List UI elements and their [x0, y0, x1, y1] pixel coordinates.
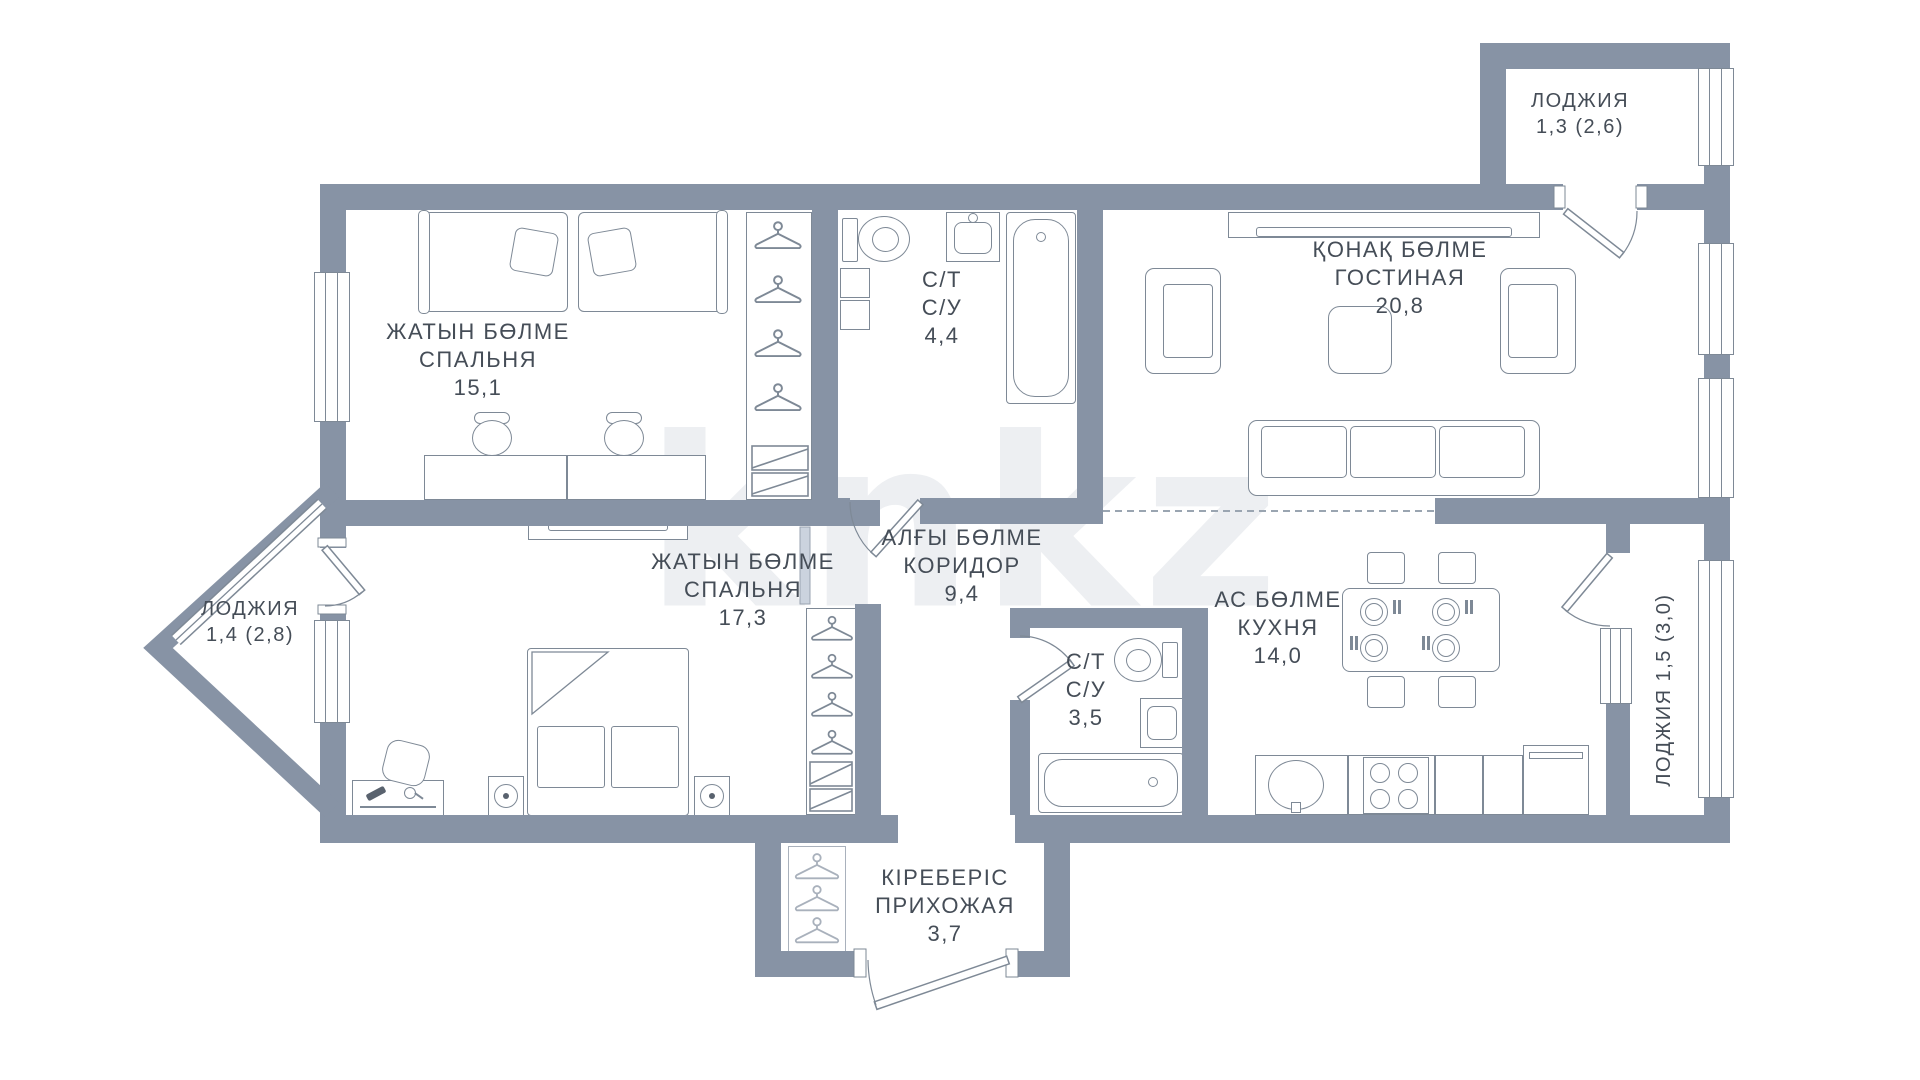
cutlery-icon [1393, 600, 1396, 614]
room-area: 15,1 [386, 374, 570, 402]
wall [812, 498, 850, 524]
pillow-icon [587, 227, 638, 278]
stool [472, 420, 512, 456]
lamp-dot [709, 793, 715, 799]
room-name-ru: СПАЛЬНЯ [651, 576, 835, 604]
wall-diagonal [158, 490, 332, 810]
wall [1704, 524, 1730, 560]
dresser [424, 455, 706, 500]
room-name-kk: ҚОНАҚ БӨЛМЕ [1313, 236, 1488, 264]
wall [1044, 843, 1070, 977]
desk [352, 780, 444, 816]
plate-inner [1437, 639, 1455, 657]
door-swing-arc [325, 592, 362, 606]
wall [1704, 43, 1730, 70]
bed-cushion [611, 726, 679, 788]
room-name-kk: С/Т [922, 266, 962, 294]
sofa-cushion [1439, 426, 1525, 478]
room-label-loggia-top: ЛОДЖИЯ 1,3 (2,6) [1531, 88, 1629, 140]
pillow-icon [509, 227, 560, 278]
wall [855, 604, 881, 815]
plate-inner [1365, 639, 1383, 657]
sink-basin [1147, 706, 1177, 740]
room-label-loggia-left: ЛОДЖИЯ 1,4 (2,8) [201, 596, 299, 648]
wall [1010, 608, 1208, 628]
plate-inner [1365, 603, 1383, 621]
window [1600, 628, 1632, 704]
room-label-bedroom2: ЖАТЫН БӨЛМЕ СПАЛЬНЯ 17,3 [651, 548, 835, 632]
room-name: ЛОДЖИЯ 1,5 (3,0) [1651, 593, 1677, 786]
room-name-ru: КУХНЯ [1214, 614, 1341, 642]
room-name: ЛОДЖИЯ [201, 596, 299, 622]
room-label-bath2: С/Т С/У 3,5 [1066, 648, 1106, 732]
drain-icon [1036, 232, 1046, 242]
wall [1480, 43, 1730, 69]
cutlery-icon [1350, 636, 1353, 650]
window [1698, 560, 1734, 798]
bed-headboard [418, 210, 430, 314]
sink-basin [954, 222, 992, 254]
counter-divider [1347, 756, 1349, 814]
room-name-kk: ЖАТЫН БӨЛМЕ [386, 318, 570, 346]
shelf [840, 300, 870, 330]
burner-icon [1398, 789, 1418, 809]
room-name: ЛОДЖИЯ [1531, 88, 1629, 114]
window [1698, 68, 1734, 166]
wardrobe [806, 608, 856, 815]
window [1698, 243, 1734, 355]
dresser-divider [566, 456, 568, 499]
wall [1435, 498, 1730, 524]
desk-line [360, 806, 436, 808]
room-name-kk: ЖАТЫН БӨЛМЕ [651, 548, 835, 576]
dining-chair [1438, 676, 1476, 708]
room-label-kitchen: АС БӨЛМЕ КУХНЯ 14,0 [1214, 586, 1341, 670]
wall [812, 210, 838, 502]
counter-divider [1434, 756, 1436, 814]
cutlery-icon [1427, 636, 1430, 650]
room-area: 3,7 [875, 920, 1015, 948]
bathtub-inner [1013, 219, 1069, 397]
plate-inner [1437, 603, 1455, 621]
sofa-cushion [1350, 426, 1436, 478]
wall [320, 500, 880, 526]
room-label-loggia-right: ЛОДЖИЯ 1,5 (3,0) [1651, 593, 1677, 786]
door-swing-arc [1565, 610, 1610, 626]
drain-icon [1148, 777, 1158, 787]
room-label-bedroom1: ЖАТЫН БӨЛМЕ СПАЛЬНЯ 15,1 [386, 318, 570, 402]
room-name-kk: КІРЕБЕРІС [875, 864, 1015, 892]
room-name-kk: АЛҒЫ БӨЛМЕ [881, 524, 1042, 552]
room-area: 17,3 [651, 604, 835, 632]
wall [1182, 608, 1208, 815]
counter-divider [1482, 756, 1484, 814]
cutlery-icon [1470, 600, 1473, 614]
door-leaf [322, 546, 365, 595]
armchair-seat [1508, 284, 1558, 358]
stool [604, 420, 644, 456]
room-area: 14,0 [1214, 642, 1341, 670]
room-name-ru: С/У [922, 294, 962, 322]
burner-icon [1398, 763, 1418, 783]
wall [920, 498, 1103, 524]
door-swing-arc [868, 960, 876, 1005]
armchair-seat [1163, 284, 1213, 358]
toilet-tank [1162, 642, 1178, 678]
room-name-ru: ГОСТИНАЯ [1313, 264, 1488, 292]
faucet-icon [968, 213, 978, 223]
cutlery-icon [1355, 636, 1358, 650]
dining-chair [1367, 552, 1405, 584]
room-label-entry: КІРЕБЕРІС ПРИХОЖАЯ 3,7 [875, 864, 1015, 948]
window [314, 620, 350, 723]
toilet-bowl [1126, 649, 1151, 672]
room-area: 4,4 [922, 322, 962, 350]
wall [1010, 628, 1030, 638]
cutlery-icon [1398, 600, 1401, 614]
room-label-living: ҚОНАҚ БӨЛМЕ ГОСТИНАЯ 20,8 [1313, 236, 1488, 320]
door-leaf [1564, 209, 1624, 258]
bed-cushion [537, 726, 605, 788]
kitchen-tap [1291, 802, 1301, 813]
room-label-corridor: АЛҒЫ БӨЛМЕ КОРИДОР 9,4 [881, 524, 1042, 608]
room-area: 20,8 [1313, 292, 1488, 320]
room-name-ru: ПРИХОЖАЯ [875, 892, 1015, 920]
shelf [840, 268, 870, 298]
room-area: 1,3 (2,6) [1531, 114, 1629, 140]
room-label-bath1: С/Т С/У 4,4 [922, 266, 962, 350]
window [314, 272, 350, 422]
room-area: 3,5 [1066, 704, 1106, 732]
room-name-kk: АС БӨЛМЕ [1214, 586, 1341, 614]
fridge-handle [1529, 752, 1583, 759]
room-name-ru: СПАЛЬНЯ [386, 346, 570, 374]
dining-chair [1367, 676, 1405, 708]
bed-headboard [716, 210, 728, 314]
room-name-kk: С/Т [1066, 648, 1106, 676]
room-area: 9,4 [881, 580, 1042, 608]
cutlery-icon [1465, 600, 1468, 614]
wall [1015, 815, 1730, 843]
room-area: 1,4 (2,8) [201, 622, 299, 648]
wall [320, 184, 1563, 210]
lamp-dot [503, 793, 509, 799]
room-name-ru: С/У [1066, 676, 1106, 704]
dining-chair [1438, 552, 1476, 584]
wall [1010, 700, 1030, 815]
door-swing-arc [1622, 211, 1637, 255]
wall [1077, 210, 1103, 524]
wardrobe [788, 846, 846, 952]
room-name-ru: КОРИДОР [881, 552, 1042, 580]
wall [1606, 524, 1630, 553]
door-leaf [874, 956, 1009, 1009]
sofa-cushion [1261, 426, 1347, 478]
burner-icon [1370, 789, 1390, 809]
floor-plan: knkz [0, 0, 1920, 1080]
wall [320, 815, 898, 843]
window [1698, 378, 1734, 498]
door-leaf [1562, 553, 1612, 611]
toilet-tank [842, 218, 858, 262]
toilet-bowl [872, 227, 899, 252]
burner-icon [1370, 763, 1390, 783]
cutlery-icon [1422, 636, 1425, 650]
wall [755, 951, 866, 977]
wardrobe [746, 212, 812, 500]
